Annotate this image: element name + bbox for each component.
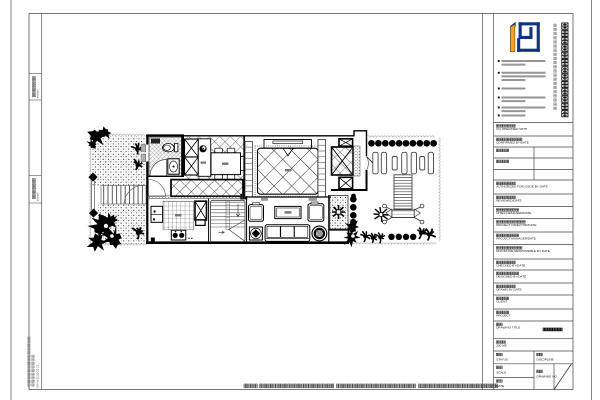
- svg-text:DESIGNED BY/DATE: DESIGNED BY/DATE: [496, 275, 526, 279]
- svg-text:CLIENT: CLIENT: [496, 300, 507, 304]
- svg-text:REVIEWED/DATE: REVIEWED/DATE: [496, 199, 521, 203]
- svg-text:PROJECT MANAGER/DATE: PROJECT MANAGER/DATE: [496, 237, 536, 241]
- svg-text:AUTHORIZED FOR ISSUE BY DATE: AUTHORIZED FOR ISSUE BY DATE: [496, 185, 547, 189]
- svg-text:STATUS: STATUS: [496, 358, 508, 362]
- svg-text:CHECKED BY/DATE: CHECKED BY/DATE: [496, 264, 525, 268]
- svg-text:BY/DATE: BY/DATE: [37, 89, 40, 98]
- svg-text:BY/DATE: BY/DATE: [37, 192, 40, 201]
- svg-text:200 M8: 200 M8: [496, 343, 507, 347]
- svg-text:CO OPERATED WITH: CO OPERATED WITH: [496, 127, 527, 131]
- svg-text:SCALE: SCALE: [496, 370, 506, 374]
- svg-text:DISCIPLINE: DISCIPLINE: [537, 358, 554, 362]
- svg-text:DATE: DATE: [496, 384, 504, 388]
- svg-text:PROJECT: PROJECT: [496, 314, 511, 318]
- svg-text:DRAWING TITLE: DRAWING TITLE: [496, 326, 520, 330]
- svg-text:DISCIPLINE RESPONSIBLE BY DATE: DISCIPLINE RESPONSIBLE BY DATE: [496, 249, 550, 253]
- svg-text:CONFIRMED BY/DATE: CONFIRMED BY/DATE: [496, 141, 529, 145]
- svg-text:PROJECT DIRECTOR/DATE: PROJECT DIRECTOR/DATE: [496, 223, 536, 227]
- svg-text:DRAWN BY DATE: DRAWN BY DATE: [496, 288, 521, 292]
- svg-text:CHIEF DESIGNER/DATE: CHIEF DESIGNER/DATE: [496, 211, 531, 215]
- svg-text:JOB No.01.52/GD-C2: JOB No.01.52/GD-C2: [37, 364, 40, 388]
